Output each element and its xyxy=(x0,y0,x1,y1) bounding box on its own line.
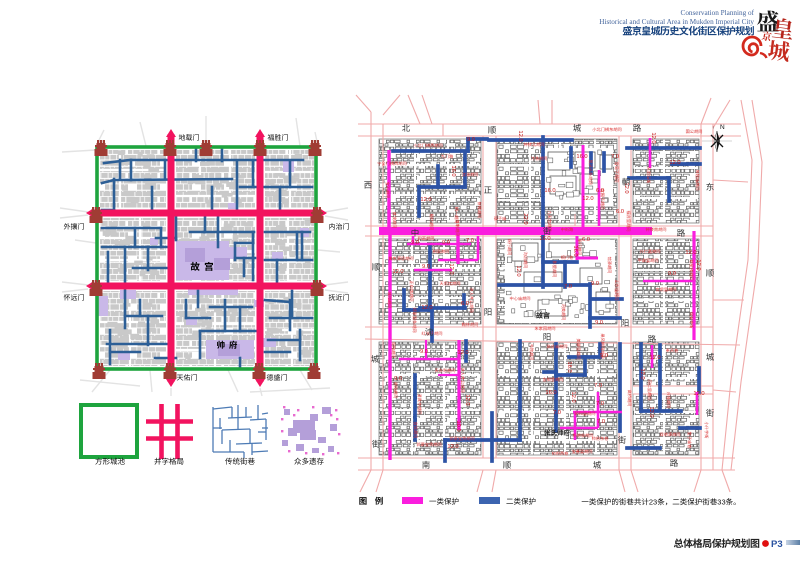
svg-text:6.0: 6.0 xyxy=(616,209,624,215)
svg-text:3: 3 xyxy=(721,498,725,507)
svg-text:3: 3 xyxy=(653,498,657,507)
svg-text:7.0: 7.0 xyxy=(594,383,602,389)
svg-text:9.0: 9.0 xyxy=(394,376,402,382)
svg-text:12.0: 12.0 xyxy=(447,444,458,450)
svg-text:9.0: 9.0 xyxy=(591,281,599,287)
svg-text:9.0: 9.0 xyxy=(442,240,450,246)
svg-text:12.0: 12.0 xyxy=(669,160,680,166)
svg-text:12.0: 12.0 xyxy=(420,197,431,203)
svg-text:12.0: 12.0 xyxy=(464,394,470,405)
svg-text:12.0: 12.0 xyxy=(515,265,521,276)
svg-text:12.0: 12.0 xyxy=(517,130,523,141)
svg-text:9.0: 9.0 xyxy=(467,137,475,143)
svg-text:7.0: 7.0 xyxy=(611,154,619,160)
svg-text:12.0: 12.0 xyxy=(421,305,432,311)
svg-text:P3: P3 xyxy=(771,539,783,550)
svg-text:9.0: 9.0 xyxy=(595,320,603,326)
svg-text:12.0: 12.0 xyxy=(650,132,656,143)
svg-text:Historical and Cultural Area i: Historical and Cultural Area in Mukden I… xyxy=(599,18,754,26)
svg-text:16.0: 16.0 xyxy=(576,154,587,160)
svg-text:16.0: 16.0 xyxy=(566,361,572,372)
svg-text:16.0: 16.0 xyxy=(450,165,456,176)
svg-text:12.0: 12.0 xyxy=(695,259,701,270)
svg-text:12.0: 12.0 xyxy=(685,250,696,256)
svg-text:16.0: 16.0 xyxy=(539,236,550,242)
svg-text:7.0: 7.0 xyxy=(564,284,572,290)
svg-text:16.0: 16.0 xyxy=(545,390,556,396)
svg-text:12.0: 12.0 xyxy=(457,350,468,356)
svg-text:6.0: 6.0 xyxy=(582,237,590,243)
svg-text:↑: ↑ xyxy=(712,125,714,130)
svg-text:6.0: 6.0 xyxy=(461,301,469,307)
svg-text:9.0: 9.0 xyxy=(411,240,419,246)
svg-text:7.0: 7.0 xyxy=(596,401,604,407)
svg-text:10.0: 10.0 xyxy=(455,420,461,431)
svg-text:12.0: 12.0 xyxy=(639,368,645,379)
svg-text:12.0: 12.0 xyxy=(582,196,593,202)
svg-text:12.0: 12.0 xyxy=(693,391,704,397)
svg-text:12.0: 12.0 xyxy=(448,263,454,274)
svg-text:7.0: 7.0 xyxy=(466,238,474,244)
svg-text:9.0: 9.0 xyxy=(668,271,676,277)
svg-text:N: N xyxy=(720,124,725,131)
svg-text:7.0: 7.0 xyxy=(597,419,605,425)
svg-text:9.0: 9.0 xyxy=(422,264,430,270)
svg-text:12.0: 12.0 xyxy=(392,269,403,275)
svg-text:12.0: 12.0 xyxy=(649,355,660,361)
svg-text:22.0: 22.0 xyxy=(522,213,528,224)
svg-text:12.0: 12.0 xyxy=(648,406,654,417)
svg-text:Conservation Planning of: Conservation Planning of xyxy=(681,9,755,17)
svg-text:12.0: 12.0 xyxy=(570,391,576,402)
svg-text:16.0: 16.0 xyxy=(544,188,555,194)
svg-text:16.0: 16.0 xyxy=(572,245,578,256)
svg-text:7.0: 7.0 xyxy=(553,410,561,416)
svg-text:9.0: 9.0 xyxy=(420,349,428,355)
